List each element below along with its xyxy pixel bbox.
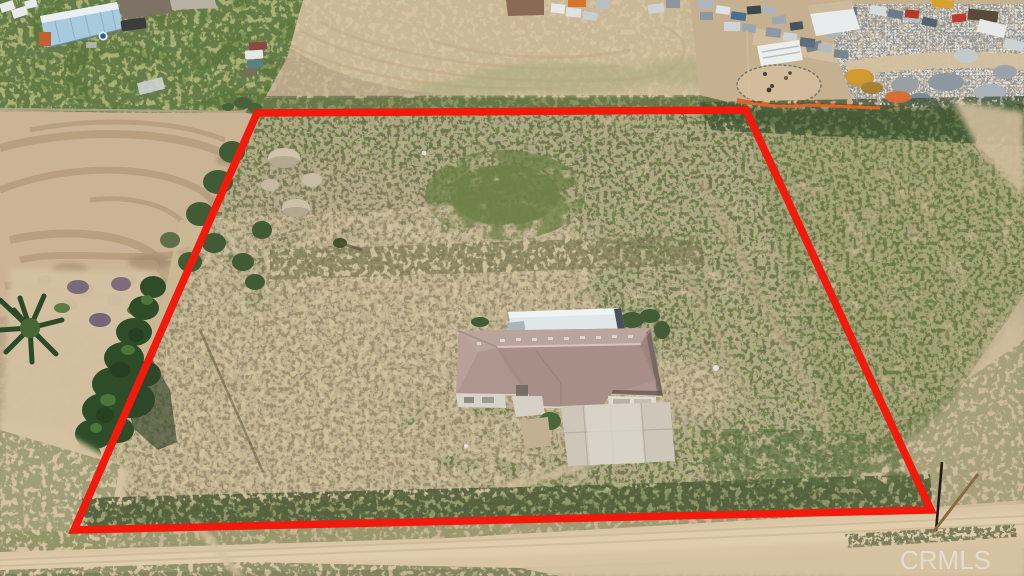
svg-text:CRMLS: CRMLS: [900, 545, 991, 575]
